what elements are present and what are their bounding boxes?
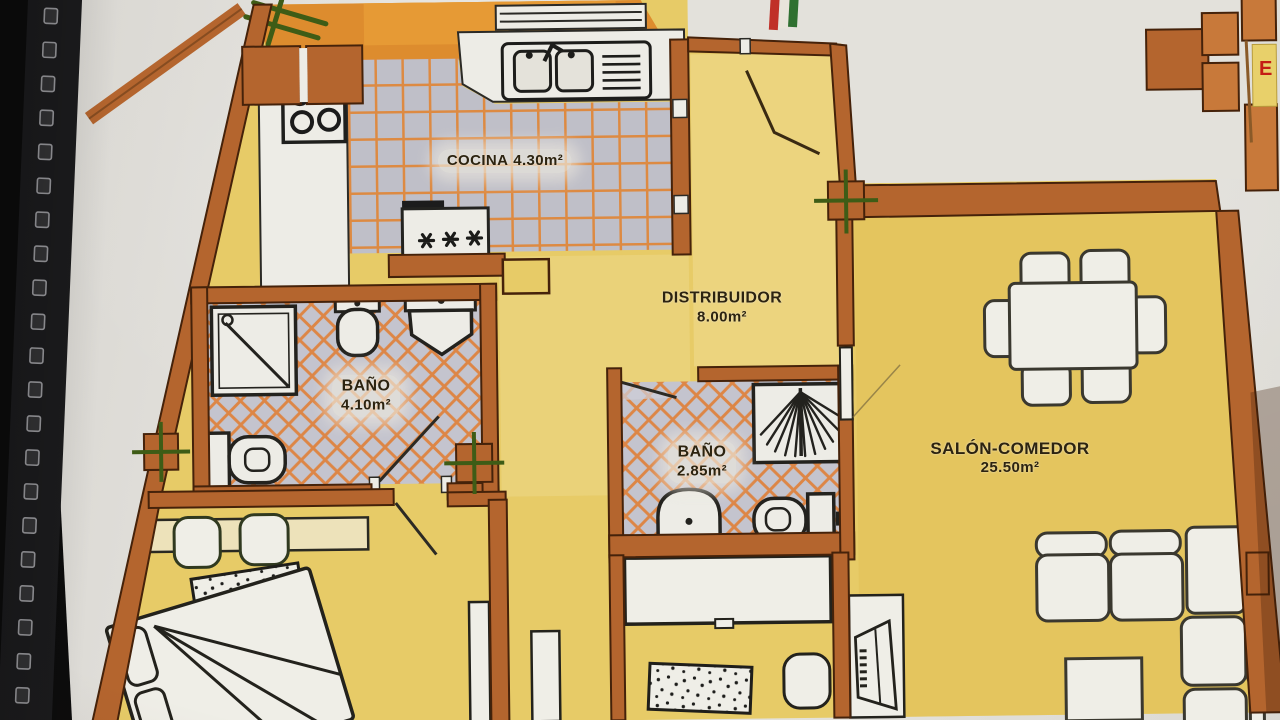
bedroom2-right-wall — [832, 552, 850, 717]
bathroom1-wall — [191, 287, 210, 502]
stool-icon — [240, 514, 289, 565]
bathroom2-wall — [698, 365, 852, 381]
stool-icon — [174, 517, 221, 568]
room-label-cocina: COCINA 4.30m² — [438, 149, 572, 173]
room-name: COCINA — [447, 152, 509, 169]
room-area: 25.50m² — [930, 459, 1089, 478]
door-leaf — [531, 631, 560, 720]
toilet-icon — [207, 432, 286, 487]
striped-marker — [769, 0, 799, 31]
sofa-icon — [1110, 553, 1183, 620]
shower-icon — [211, 306, 296, 395]
room-name: BAÑO — [677, 443, 727, 463]
bidet-icon — [335, 295, 380, 356]
room-area: 4.30m² — [513, 152, 563, 169]
floorplan-drawing — [0, 0, 1280, 720]
floor-plan — [84, 0, 1280, 720]
tv-unit — [849, 595, 904, 718]
salon-partition — [836, 217, 854, 345]
bathroom2-wall — [609, 532, 854, 557]
rug-icon — [648, 663, 752, 713]
sofa-icon — [1184, 689, 1247, 720]
column — [503, 259, 549, 294]
room-name: DISTRIBUIDOR — [662, 289, 782, 309]
bedroom2-left-wall — [609, 555, 625, 720]
room-area: 2.85m² — [677, 463, 727, 482]
bedroom1-right-wall — [489, 500, 510, 720]
shower2-icon — [753, 384, 842, 463]
room-area: 8.00m² — [662, 309, 782, 328]
binder-strip — [0, 0, 82, 720]
floorplan-photo: COCINA 4.30m² DISTRIBUIDOR 8.00m² BAÑO 4… — [0, 0, 1280, 720]
bathroom1-wall — [191, 284, 496, 304]
kitchen-right-wall — [670, 39, 691, 254]
room-label-distribuidor: DISTRIBUIDOR 8.00m² — [662, 289, 782, 328]
wardrobe-icon — [624, 556, 831, 625]
room-label-salon: SALÓN-COMEDOR 25.50m² — [930, 438, 1089, 478]
coffee-table-icon — [1066, 658, 1143, 720]
room-label-bano-2: BAÑO 2.85m² — [668, 441, 736, 484]
sofa-icon — [1181, 617, 1246, 686]
room-area: 4.10m² — [341, 397, 391, 416]
salon-top-wall — [840, 181, 1220, 218]
room-name: BAÑO — [341, 377, 391, 397]
bathroom2-wall — [607, 368, 623, 562]
door-leaf — [469, 602, 490, 720]
room-label-bano-1: BAÑO 4.10m² — [332, 375, 400, 418]
bedroom1-top-wall — [149, 489, 394, 508]
edge-label: E — [1259, 58, 1272, 81]
kitchen-bottom-wall — [389, 254, 505, 277]
sofa-corner-icon — [1186, 527, 1245, 614]
dining-table-icon — [1009, 282, 1137, 370]
sink-icon — [502, 42, 651, 100]
room-name: SALÓN-COMEDOR — [930, 438, 1089, 459]
chair-icon — [784, 654, 831, 709]
sofa-icon — [1036, 554, 1109, 621]
wall-cabinet — [496, 4, 646, 30]
